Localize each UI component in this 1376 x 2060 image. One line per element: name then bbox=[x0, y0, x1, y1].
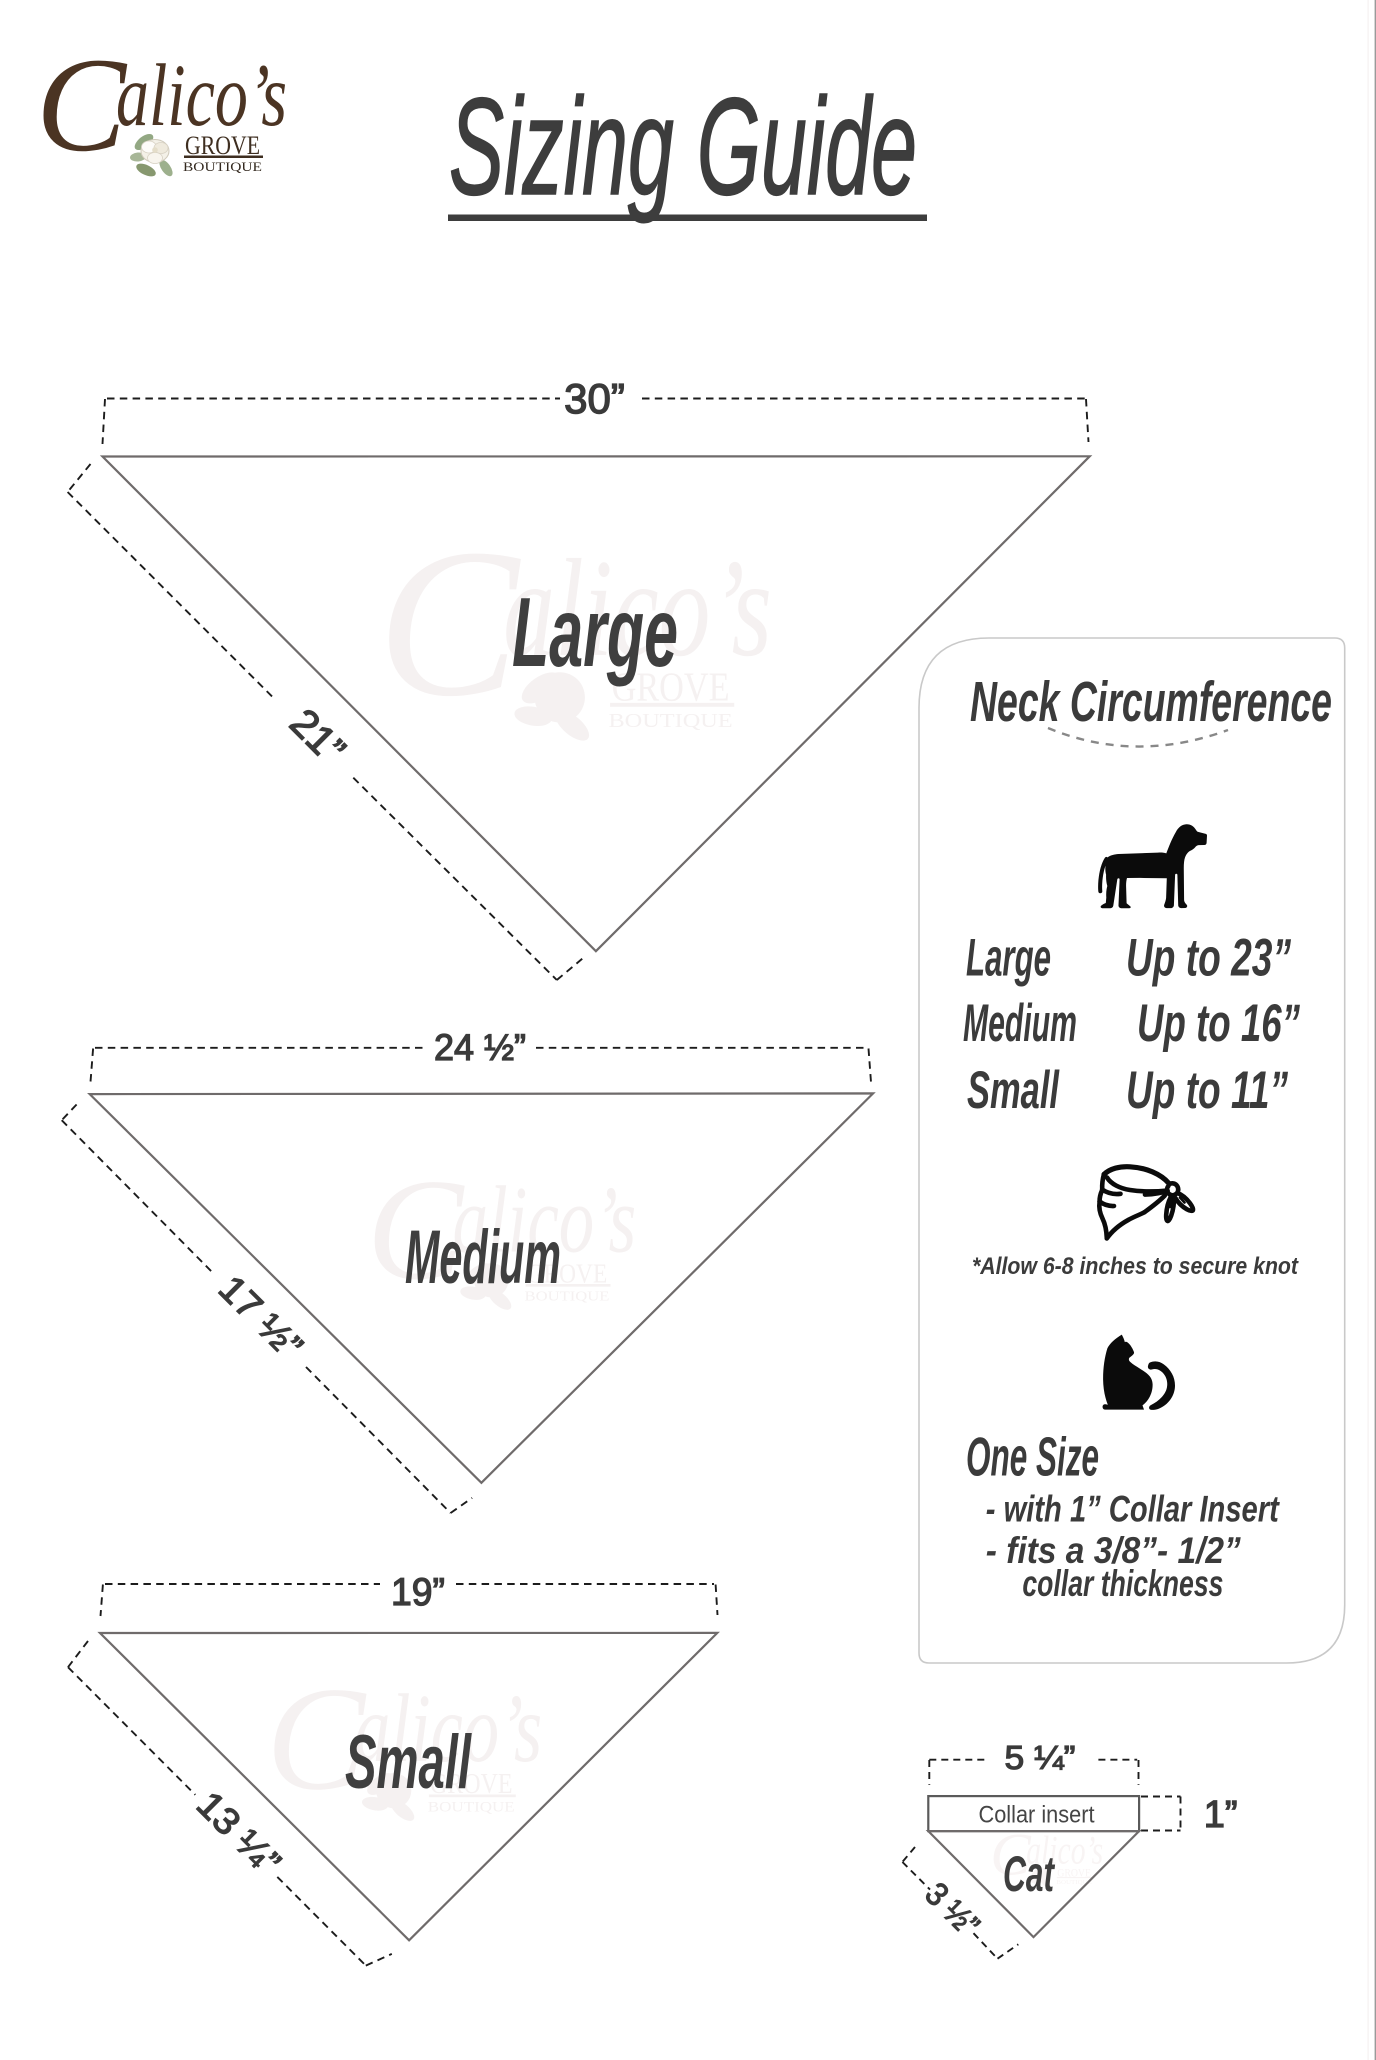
svg-text:Large: Large bbox=[512, 577, 678, 687]
svg-text:Cat: Cat bbox=[1003, 1846, 1055, 1902]
svg-text:Small: Small bbox=[967, 1061, 1060, 1120]
svg-text:collar thickness: collar thickness bbox=[1022, 1563, 1223, 1604]
svg-text:C: C bbox=[36, 31, 128, 180]
svg-text:1”: 1” bbox=[1204, 1794, 1238, 1836]
svg-text:Up to 16”: Up to 16” bbox=[1137, 994, 1300, 1053]
svg-text:Medium: Medium bbox=[963, 994, 1077, 1053]
svg-text:Large: Large bbox=[966, 929, 1051, 988]
svg-text:Up to 23”: Up to 23” bbox=[1126, 929, 1291, 988]
svg-text:Sizing Guide: Sizing Guide bbox=[449, 70, 917, 224]
svg-text:BOUTIQUE: BOUTIQUE bbox=[183, 159, 262, 174]
svg-text:Small: Small bbox=[345, 1720, 472, 1805]
svg-text:Neck Circumference: Neck Circumference bbox=[970, 670, 1332, 734]
svg-text:One Size: One Size bbox=[966, 1426, 1099, 1488]
svg-text:24 ½”: 24 ½” bbox=[434, 1027, 526, 1068]
svg-text:Medium: Medium bbox=[405, 1215, 561, 1300]
svg-text:*Allow 6-8 inches to secure kn: *Allow 6-8 inches to secure knot bbox=[972, 1253, 1299, 1280]
svg-text:Collar insert: Collar insert bbox=[979, 1802, 1095, 1829]
svg-text:- with 1” Collar Insert: - with 1” Collar Insert bbox=[986, 1488, 1280, 1529]
svg-text:19”: 19” bbox=[391, 1571, 445, 1614]
svg-text:Up to 11”: Up to 11” bbox=[1126, 1061, 1288, 1120]
svg-text:5 ¼”: 5 ¼” bbox=[1005, 1739, 1076, 1776]
svg-text:30”: 30” bbox=[564, 375, 625, 422]
